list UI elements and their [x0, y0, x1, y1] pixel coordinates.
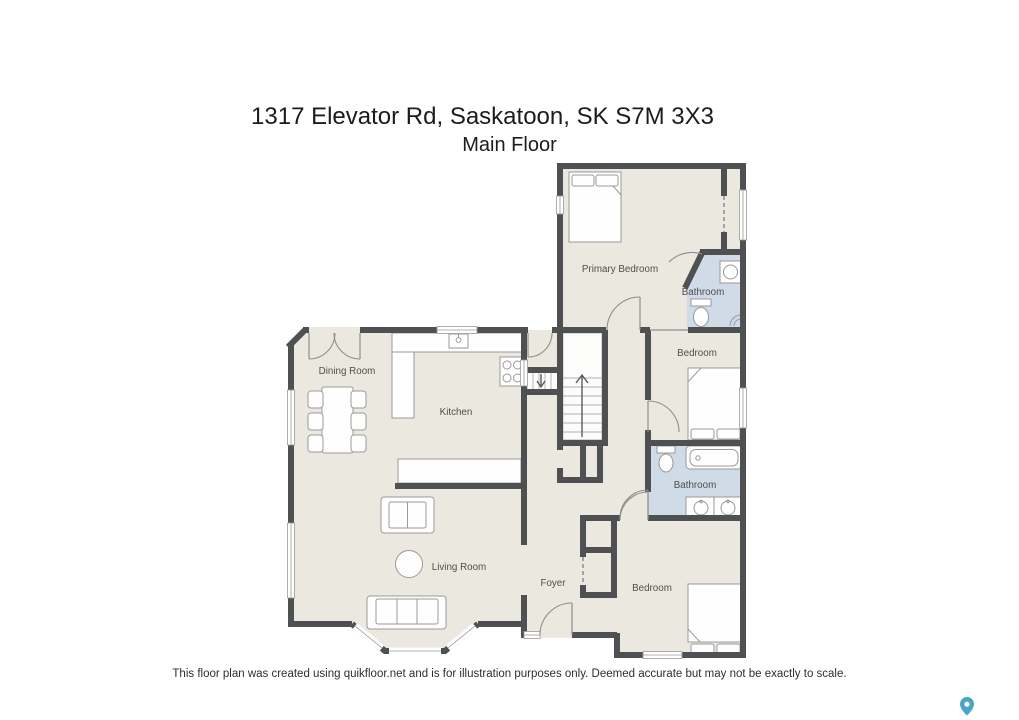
staircase-up [563, 333, 602, 443]
dining-chair [308, 435, 323, 452]
main-bath-toilet [657, 446, 675, 453]
floor-areas [288, 163, 746, 658]
dining-chair [351, 435, 366, 452]
room-label-bedroom-middle: Bedroom [677, 348, 717, 359]
dining-chair [308, 413, 323, 430]
room-label-kitchen: Kitchen [440, 407, 473, 418]
dining-chair [351, 413, 366, 430]
dining-chair [351, 391, 366, 408]
room-label-bathroom-main: Bathroom [674, 480, 716, 491]
dining-table [322, 387, 353, 453]
room-label-bathroom-ensuite: Bathroom [682, 287, 724, 298]
room-label-primary-bedroom: Primary Bedroom [582, 264, 658, 275]
dining-furniture [308, 387, 366, 453]
room-label-living-room: Living Room [432, 562, 486, 573]
map-pin-icon [960, 697, 974, 716]
ensuite-toilet [691, 299, 711, 306]
staircase-down [527, 370, 558, 392]
disclaimer-text: This floor plan was created using quikfl… [0, 668, 1019, 680]
middle-bedroom-bed [688, 368, 741, 440]
dining-chair [308, 391, 323, 408]
kitchen-island [398, 459, 521, 483]
room-label-dining-room: Dining Room [319, 366, 376, 377]
primary-bed [569, 172, 621, 242]
room-label-bedroom-rear: Bedroom [632, 583, 672, 594]
kitchen-counter-left [392, 352, 414, 418]
round-table [396, 551, 423, 578]
room-label-foyer: Foyer [540, 578, 566, 589]
floor-plan: Primary Bedroom Bathroom Bedroom Bathroo… [0, 0, 1019, 720]
